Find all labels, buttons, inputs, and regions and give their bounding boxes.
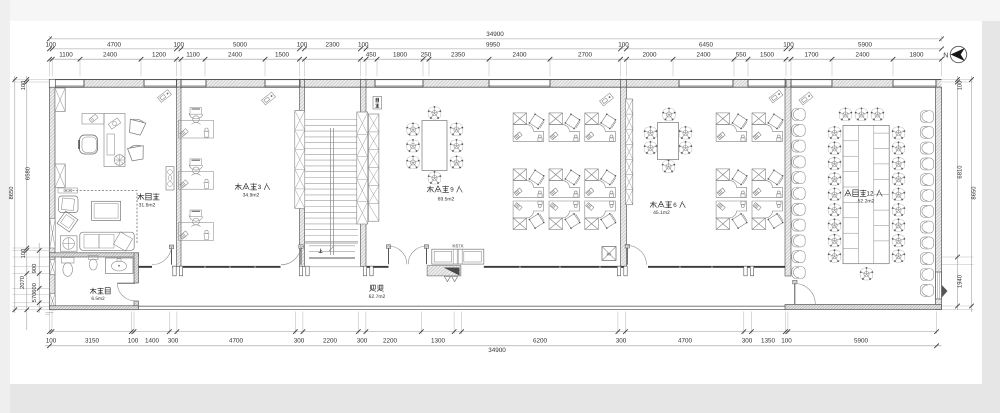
- svg-text:550: 550: [736, 52, 747, 59]
- svg-text:1100: 1100: [59, 52, 73, 59]
- svg-text:100: 100: [358, 41, 369, 48]
- svg-text:1100: 1100: [186, 52, 200, 59]
- svg-text:K67X: K67X: [452, 243, 463, 248]
- svg-text:1200: 1200: [152, 52, 167, 59]
- svg-text:1300: 1300: [431, 337, 446, 344]
- svg-text:6450: 6450: [699, 41, 714, 48]
- svg-text:6810: 6810: [956, 165, 963, 179]
- svg-text:34900: 34900: [486, 31, 504, 38]
- svg-text:300: 300: [742, 337, 753, 344]
- svg-text:2070: 2070: [19, 275, 26, 289]
- svg-text:2400: 2400: [855, 52, 870, 59]
- svg-text:8650: 8650: [970, 186, 977, 200]
- svg-text:34.9m2: 34.9m2: [243, 193, 260, 199]
- svg-text:100: 100: [781, 337, 792, 344]
- svg-text:2400: 2400: [103, 52, 118, 59]
- svg-text:2200: 2200: [383, 337, 398, 344]
- svg-text:570: 570: [31, 292, 38, 303]
- svg-text:62.7m2: 62.7m2: [369, 294, 386, 300]
- svg-text:1700: 1700: [804, 52, 819, 59]
- svg-text:5000: 5000: [233, 41, 248, 48]
- svg-text:900: 900: [31, 263, 38, 274]
- svg-text:4700: 4700: [678, 337, 693, 344]
- svg-text:9: 9: [450, 187, 454, 194]
- svg-text:300: 300: [616, 337, 627, 344]
- svg-text:6.5m2: 6.5m2: [91, 296, 105, 302]
- svg-text:9950: 9950: [486, 41, 501, 48]
- svg-text:12: 12: [867, 191, 874, 198]
- svg-text:2400: 2400: [228, 52, 243, 59]
- svg-text:3: 3: [258, 184, 262, 191]
- svg-text:5900: 5900: [854, 337, 869, 344]
- svg-text:2200: 2200: [323, 337, 338, 344]
- svg-text:2300: 2300: [325, 41, 340, 48]
- svg-text:100: 100: [20, 248, 27, 259]
- svg-text:52.2m2: 52.2m2: [858, 199, 875, 205]
- svg-text:1350: 1350: [761, 337, 776, 344]
- svg-text:5900: 5900: [858, 41, 873, 48]
- svg-text:1800: 1800: [909, 52, 924, 59]
- svg-text:2700: 2700: [578, 52, 593, 59]
- svg-text:300: 300: [294, 337, 305, 344]
- svg-text:N: N: [943, 51, 948, 60]
- svg-text:69.5m2: 69.5m2: [438, 197, 455, 203]
- svg-text:100: 100: [297, 41, 308, 48]
- svg-text:B6: B6: [607, 253, 612, 257]
- svg-text:100: 100: [46, 41, 57, 48]
- svg-text:100: 100: [20, 80, 27, 91]
- svg-text:2000: 2000: [642, 52, 657, 59]
- svg-text:1800: 1800: [393, 52, 408, 59]
- svg-text:8650: 8650: [8, 186, 15, 200]
- svg-text:1940: 1940: [956, 274, 963, 288]
- svg-text:250: 250: [421, 52, 432, 59]
- svg-text:45.1m2: 45.1m2: [653, 210, 670, 216]
- svg-text:3150: 3150: [85, 337, 100, 344]
- svg-text:450: 450: [366, 52, 377, 59]
- svg-text:100: 100: [618, 41, 629, 48]
- svg-text:31.6m2: 31.6m2: [139, 203, 156, 209]
- svg-text:1500: 1500: [275, 52, 290, 59]
- svg-text:1400: 1400: [145, 337, 160, 344]
- svg-text:2400: 2400: [696, 52, 711, 59]
- svg-text:100: 100: [128, 337, 139, 344]
- svg-text:6580: 6580: [24, 166, 31, 180]
- svg-text:4700: 4700: [229, 337, 244, 344]
- svg-text:600: 600: [31, 282, 38, 293]
- svg-text:100: 100: [173, 41, 184, 48]
- svg-text:2400: 2400: [512, 52, 527, 59]
- svg-text:100: 100: [46, 337, 57, 344]
- svg-text:100: 100: [956, 80, 963, 91]
- svg-text:6: 6: [673, 202, 677, 209]
- svg-text:2350: 2350: [451, 52, 466, 59]
- svg-text:6200: 6200: [533, 337, 548, 344]
- svg-text:1500: 1500: [760, 52, 775, 59]
- svg-text:300: 300: [168, 337, 179, 344]
- svg-text:300: 300: [357, 337, 368, 344]
- svg-text:34900: 34900: [488, 347, 506, 354]
- svg-text:4700: 4700: [107, 41, 122, 48]
- svg-text:100: 100: [783, 41, 794, 48]
